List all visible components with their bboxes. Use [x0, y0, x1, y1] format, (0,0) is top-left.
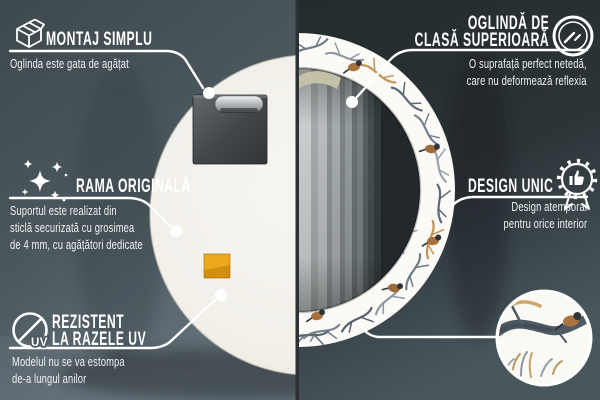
callout-subtitle-design-line1: Design atemporal	[511, 198, 587, 215]
callout-subtitle-rezistent-line1: Modelul nu se va estompa	[12, 353, 125, 370]
product-infographic: UV	[0, 0, 600, 400]
mirror-reflection	[299, 60, 381, 322]
callout-title-rama: RAMA ORIGINALĂ	[76, 178, 191, 196]
callout-subtitle-rama-line1: Suportul este realizat din	[10, 202, 117, 219]
montaj-callout-dot	[203, 87, 215, 99]
callout-title-rezistent-line2: LA RAZELE UV	[52, 331, 146, 349]
oglinda-callout-dot	[346, 96, 358, 108]
callout-title-design: DESIGN UNIC	[468, 178, 553, 196]
hanging-plate	[193, 95, 267, 164]
callout-title-montaj: MONTAJ SIMPLU	[46, 31, 152, 49]
uv-icon-label: UV	[31, 337, 48, 349]
callout-title-oglinda-line2: CLASĂ SUPERIOARĂ	[414, 32, 549, 50]
callout-subtitle-rama-line3: de 4 mm, cu agățători dedicate	[10, 236, 143, 253]
callout-subtitle-oglinda-line2: care nu deformează reflexia	[467, 72, 587, 89]
split-divider	[296, 0, 300, 400]
callout-subtitle-design-line2: pentru orice interior	[503, 215, 587, 232]
callout-subtitle-oglinda-line1: O suprafață perfect netedă,	[469, 55, 587, 72]
curtain-reflection	[299, 60, 381, 322]
callout-subtitle-rama-line2: sticlă securizată cu grosimea	[10, 219, 134, 236]
callout-subtitle-rezistent-line2: de-a lungul anilor	[12, 370, 86, 387]
rezistent-callout-dot	[215, 289, 227, 301]
callout-subtitle-montaj: Oglinda este gata de agățat	[10, 55, 129, 72]
rama-callout-dot	[170, 225, 182, 237]
orange-sticker	[204, 254, 230, 278]
